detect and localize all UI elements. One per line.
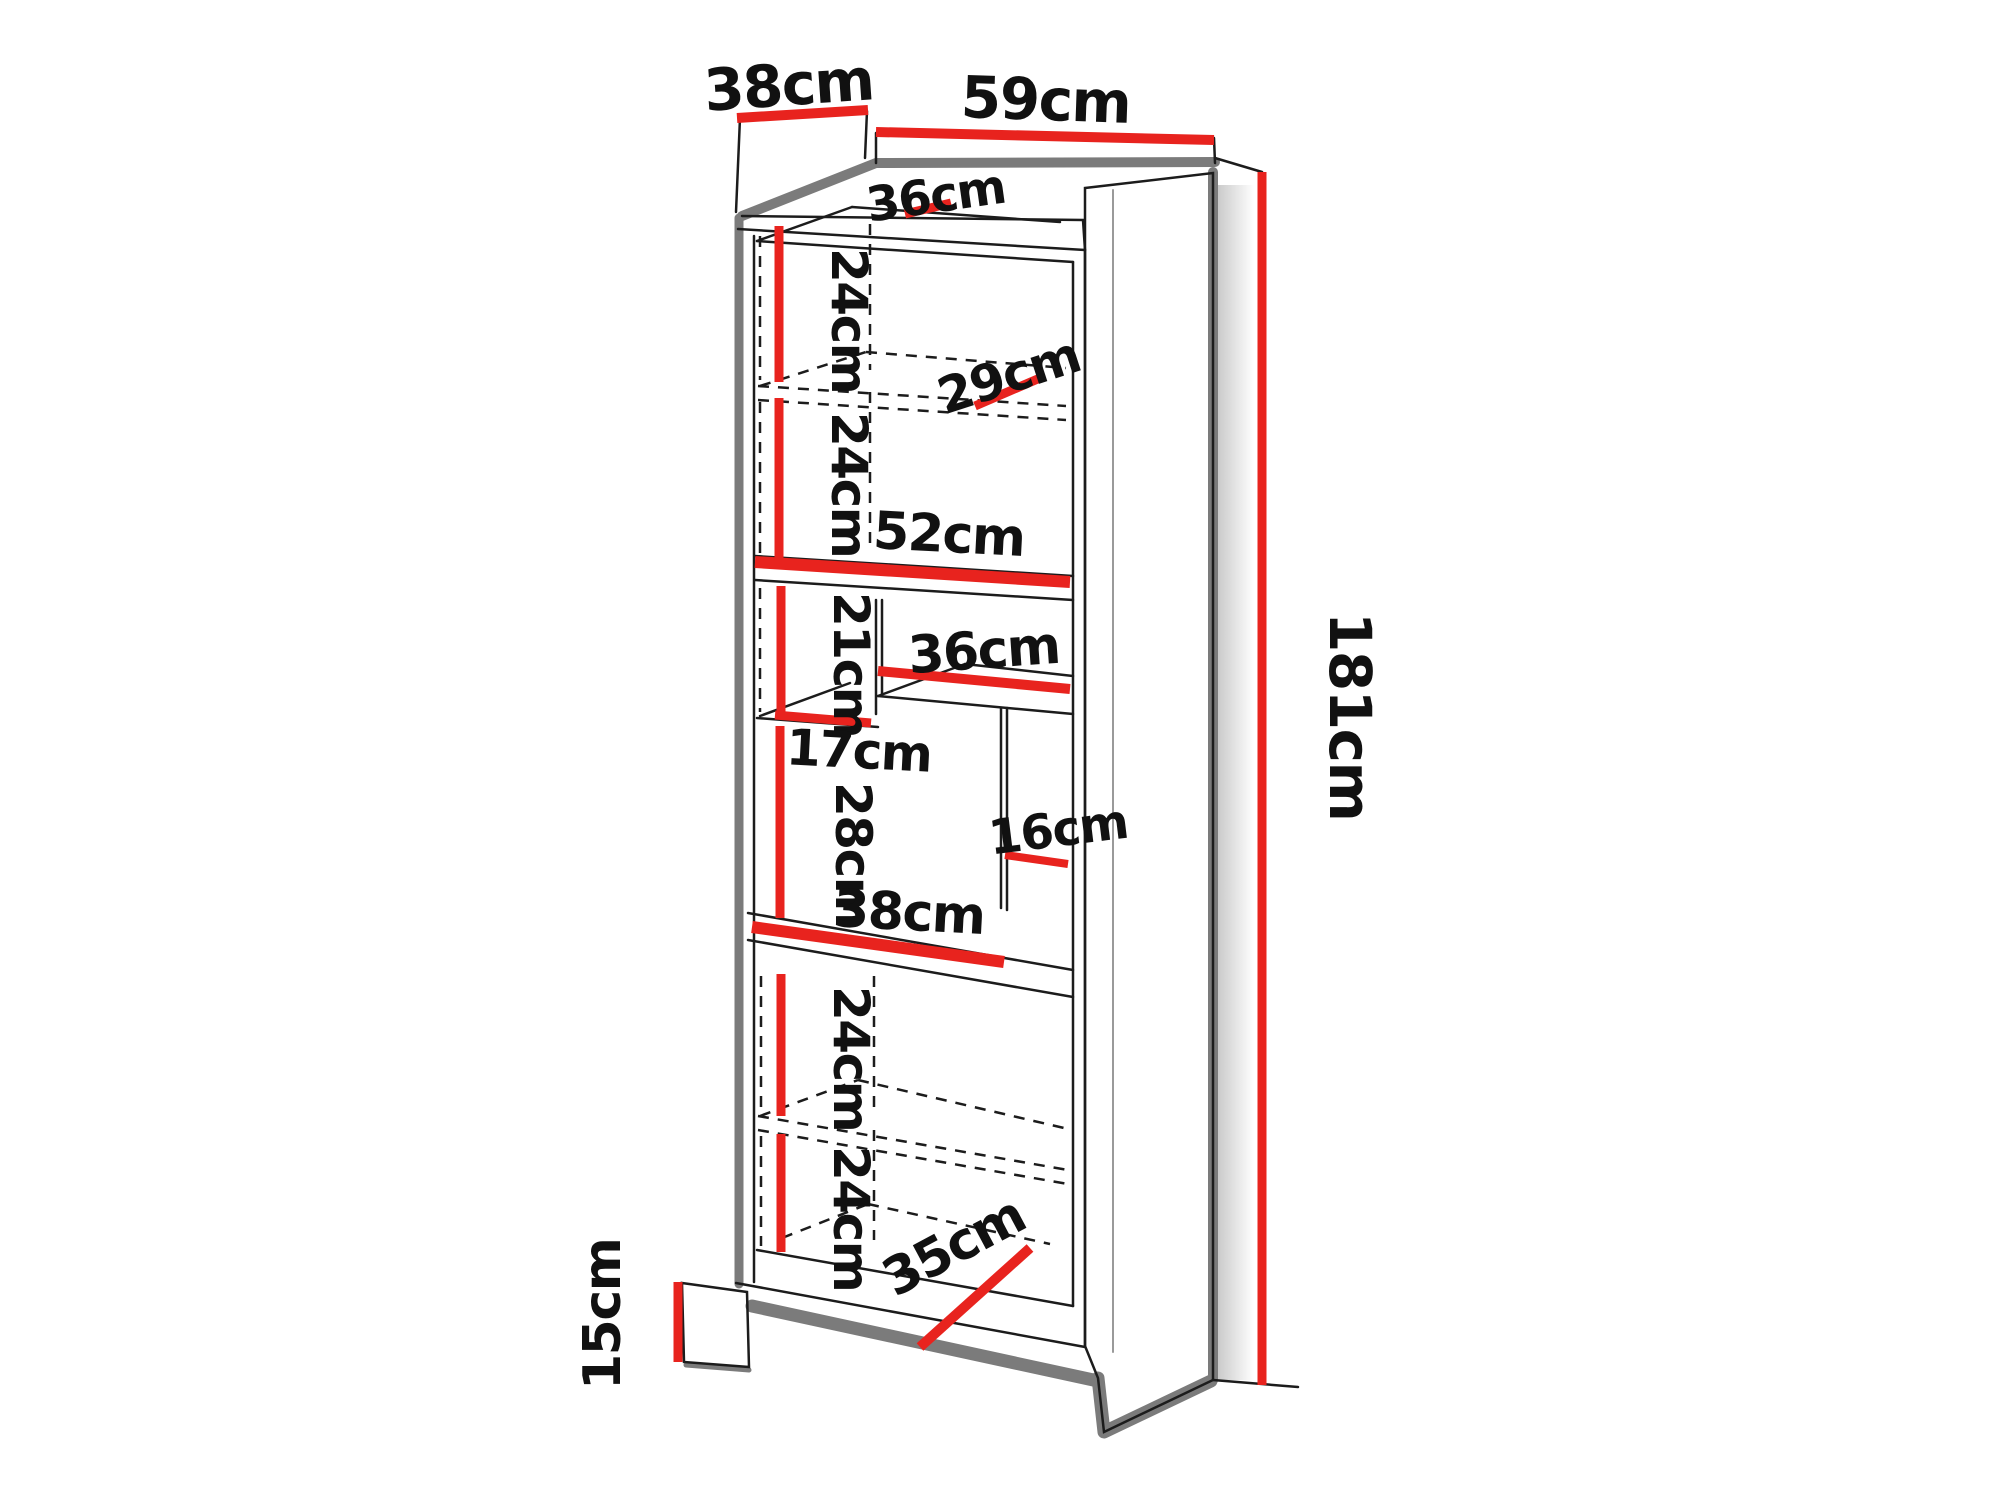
label-shelf-h-17: 17cm (785, 718, 933, 784)
floor-line (1213, 1380, 1298, 1387)
label-shelf-h-3: 24cm (822, 986, 880, 1131)
label-shelf-h-4: 24cm (822, 1146, 880, 1291)
cast-shadow (1216, 185, 1254, 1380)
label-cubby-w-36: 36cm (906, 616, 1061, 686)
diagram-canvas: 38cm 59cm 36cm 24cm 29cm 24cm 52cm 21cm … (0, 0, 2000, 1500)
label-width-top: 59cm (960, 63, 1132, 137)
label-shelf-w-52: 52cm (872, 501, 1026, 569)
left-foot (682, 1283, 749, 1367)
bookcase-dimension-diagram: 38cm 59cm 36cm 24cm 29cm 24cm 52cm 21cm … (0, 0, 2000, 1500)
label-shelf-h-1: 24cm (820, 248, 878, 393)
label-depth-top: 38cm (702, 45, 876, 125)
label-shelf-h-21: 21cm (822, 592, 880, 737)
ext-38-right (865, 111, 867, 158)
ext-181-top (1215, 158, 1262, 172)
label-plinth-height: 15cm (573, 1239, 633, 1390)
label-total-height: 181cm (1316, 612, 1384, 820)
label-shelf-h-2: 24cm (820, 412, 878, 557)
label-shelf-w-38: 38cm (832, 879, 986, 947)
ext-38-left (736, 118, 740, 212)
